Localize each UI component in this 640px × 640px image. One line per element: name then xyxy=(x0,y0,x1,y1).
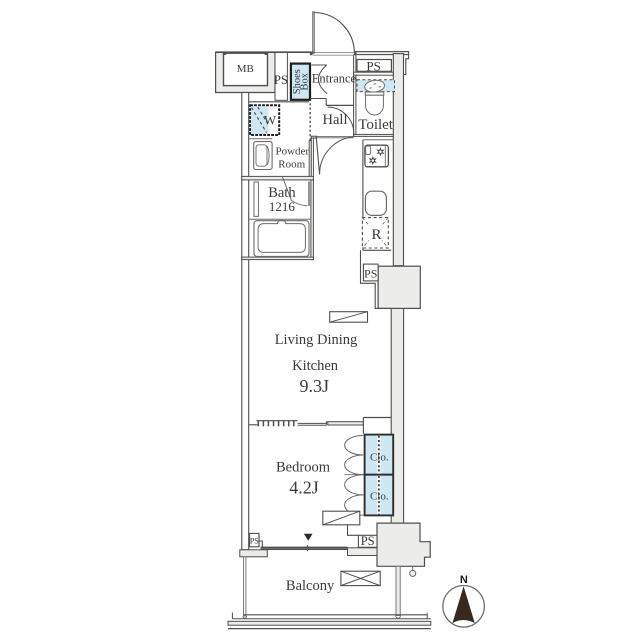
svg-text:1216: 1216 xyxy=(269,199,296,214)
svg-text:Balcony: Balcony xyxy=(286,578,335,594)
svg-text:4.2J: 4.2J xyxy=(289,477,319,497)
svg-text:Clo.: Clo. xyxy=(370,451,389,463)
svg-text:Bedroom: Bedroom xyxy=(276,460,331,476)
svg-text:Toilet: Toilet xyxy=(358,117,394,133)
svg-text:MB: MB xyxy=(237,63,254,75)
svg-text:Kitchen: Kitchen xyxy=(292,358,339,374)
svg-text:PS: PS xyxy=(274,73,288,87)
svg-text:Powder: Powder xyxy=(275,146,309,158)
svg-text:Room: Room xyxy=(278,159,305,171)
svg-text:Box: Box xyxy=(300,72,311,90)
svg-text:R: R xyxy=(371,227,381,243)
svg-text:PS: PS xyxy=(366,58,380,73)
svg-text:Hall: Hall xyxy=(323,112,348,128)
svg-text:Entrance: Entrance xyxy=(312,72,357,86)
svg-text:W: W xyxy=(264,113,277,128)
svg-text:Living Dining: Living Dining xyxy=(275,332,358,348)
svg-text:N: N xyxy=(460,574,468,586)
svg-text:PS: PS xyxy=(250,536,259,545)
svg-text:PS: PS xyxy=(361,534,375,548)
svg-text:Clo.: Clo. xyxy=(370,490,389,502)
svg-text:9.3J: 9.3J xyxy=(299,376,329,396)
svg-text:PS: PS xyxy=(364,267,377,281)
